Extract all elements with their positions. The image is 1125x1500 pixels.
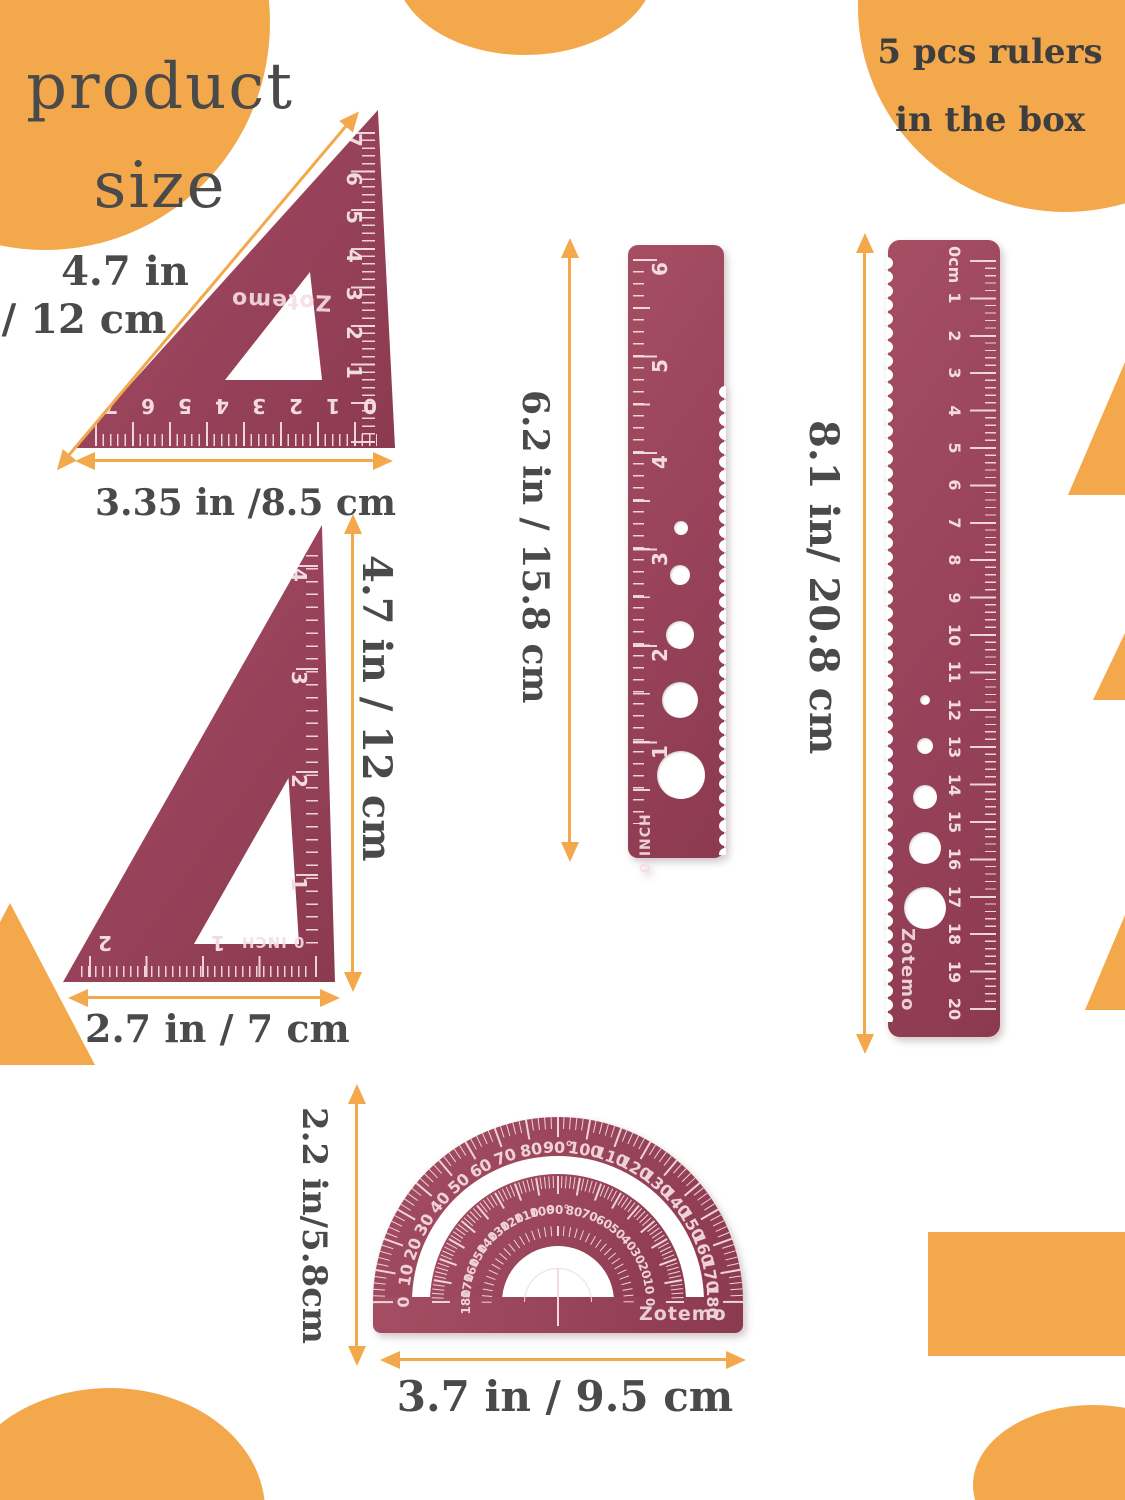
long-ruler-hole-3 (913, 785, 937, 809)
scale-number: 20 (943, 994, 965, 1024)
pcs-badge: 5 pcs rulers in the box (865, 18, 1115, 154)
scale-number: 0cm (943, 246, 965, 276)
brand-logo-triangle-1: Zotemo (231, 286, 332, 314)
scale-number: 4 (943, 396, 965, 426)
dim-label-triangle1-hyp-line1: 4.7 in (55, 248, 195, 295)
page-title-line1: product (15, 38, 305, 137)
scale-number: 5 (170, 395, 200, 417)
scale-number: 2 (649, 640, 671, 670)
scale-number: 9 (943, 583, 965, 613)
long-ruler-hole-2 (917, 738, 933, 754)
small-ruler-hole-3 (666, 621, 694, 649)
scale-number: 10 (943, 620, 965, 650)
triangle-ruler-1-base-ticks-major (95, 422, 377, 446)
dim-label-protractor-width: 3.7 in / 9.5 cm (390, 1372, 740, 1421)
page-title-line2: size (15, 137, 305, 236)
scale-number: 2 (943, 321, 965, 351)
small-ruler-hole-4 (662, 682, 698, 718)
scale-number: 2 (288, 766, 310, 796)
scale-number: 16 (943, 844, 965, 874)
dim-label-triangle2-base: 2.7 in / 7 cm (85, 1006, 345, 1051)
scale-number: 4 (207, 395, 237, 417)
scale-number: 4 (343, 241, 365, 271)
small-ruler-serrated-edge (716, 385, 726, 855)
scale-number: 4 (288, 560, 310, 590)
scale-number: 1 (943, 283, 965, 313)
scale-number: 3 (343, 279, 365, 309)
triangle-ruler-2-base-ticks-major (89, 956, 317, 977)
scale-number: 4 (649, 447, 671, 477)
scale-number: 2 (90, 932, 120, 954)
triangle-ruler-2-hole (194, 778, 299, 944)
dim-label-protractor-height: 2.2 in/5.8cm (294, 1107, 334, 1344)
brand-logo-long-ruler: Zotemo (897, 928, 918, 1011)
deco-triangle-right-1 (1068, 362, 1125, 495)
protractor-scale-number: 180 (703, 1284, 721, 1320)
scale-number: 12 (943, 695, 965, 725)
small-ruler-hole-1 (674, 521, 688, 535)
scale-number: 1 (203, 932, 233, 954)
protractor-tick (558, 1301, 634, 1302)
product-size-infographic: product size 5 pcs rulers in the box 765… (0, 0, 1125, 1500)
triangle-ruler-2: 4321 21 0 INCH (63, 525, 335, 982)
scale-number: 13 (943, 732, 965, 762)
small-ruler-zero-label: 0 INCH (638, 813, 654, 873)
scale-number: 6 (943, 470, 965, 500)
dim-arrow-triangle1-base (91, 459, 377, 462)
dim-label-triangle1-hyp-line2: / 12 cm (0, 296, 168, 343)
scale-number: 17 (943, 882, 965, 912)
protractor-scales: 0102030405060708090°10011012013014015016… (373, 1117, 743, 1333)
long-ruler-serrated-edge (886, 256, 896, 1022)
dim-arrow-small-ruler (568, 254, 571, 846)
small-ruler-hole-2 (670, 565, 690, 585)
scale-number: 3 (649, 544, 671, 574)
scale-number: 3 (244, 395, 274, 417)
scale-number: 6 (133, 395, 163, 417)
scale-number: 1 (343, 357, 365, 387)
scale-number: 2 (343, 318, 365, 348)
blob-top-center (395, 0, 655, 55)
deco-rect-bottom-right (928, 1232, 1125, 1356)
scale-number: 3 (943, 358, 965, 388)
triangle-ruler-2-zero-label: 0 INCH (241, 933, 304, 951)
scale-number: 6 (649, 254, 671, 284)
scale-number: 18 (943, 919, 965, 949)
scale-number: 5 (649, 351, 671, 381)
scale-number: 14 (943, 770, 965, 800)
dim-label-long-ruler: 8.1 in/ 20.8 cm (800, 420, 847, 754)
scale-number: 6 (343, 164, 365, 194)
scale-number: 2 (281, 395, 311, 417)
small-ruler: 654321 0 INCH (628, 245, 724, 858)
blob-bottom-left (0, 1388, 265, 1500)
long-ruler-hole-1 (920, 695, 930, 705)
scale-number: 5 (943, 433, 965, 463)
scale-number: 1 (288, 869, 310, 899)
pcs-badge-line2: in the box (865, 86, 1115, 154)
long-ruler: 0cm1234567891011121314151617181920 Zotem… (888, 240, 1000, 1037)
dim-arrow-protractor-width (396, 1358, 730, 1361)
dim-arrow-protractor-height (355, 1100, 358, 1350)
deco-triangle-left (0, 903, 95, 1065)
long-ruler-hole-5 (904, 887, 946, 929)
long-ruler-hole-4 (909, 832, 941, 864)
dim-label-small-ruler: 6.2 in / 15.8 cm (514, 390, 556, 703)
protractor: Zotemo 0102030405060708090°1001101201301… (373, 1117, 743, 1333)
long-ruler-ticks-major (970, 260, 996, 1012)
page-title: product size (15, 38, 305, 236)
protractor-scale-number: 0 (641, 1284, 659, 1320)
small-ruler-hole-5 (657, 751, 705, 799)
scale-number: 19 (943, 957, 965, 987)
scale-number: 7 (943, 508, 965, 538)
dim-arrow-long-ruler (863, 249, 866, 1038)
scale-number: 3 (288, 663, 310, 693)
scale-number: 11 (943, 657, 965, 687)
scale-number: 15 (943, 807, 965, 837)
deco-triangle-right-3 (1085, 915, 1125, 1010)
blob-bottom-right (973, 1405, 1125, 1500)
scale-number: 1 (318, 395, 348, 417)
scale-number: 8 (943, 545, 965, 575)
scale-number: 5 (343, 202, 365, 232)
dim-arrow-triangle2-base (84, 996, 324, 999)
dim-label-triangle2-side: 4.7 in / 12 cm (353, 555, 400, 862)
scale-number: 0 (355, 395, 385, 417)
pcs-badge-line1: 5 pcs rulers (865, 18, 1115, 86)
deco-triangle-right-2 (1093, 633, 1125, 700)
